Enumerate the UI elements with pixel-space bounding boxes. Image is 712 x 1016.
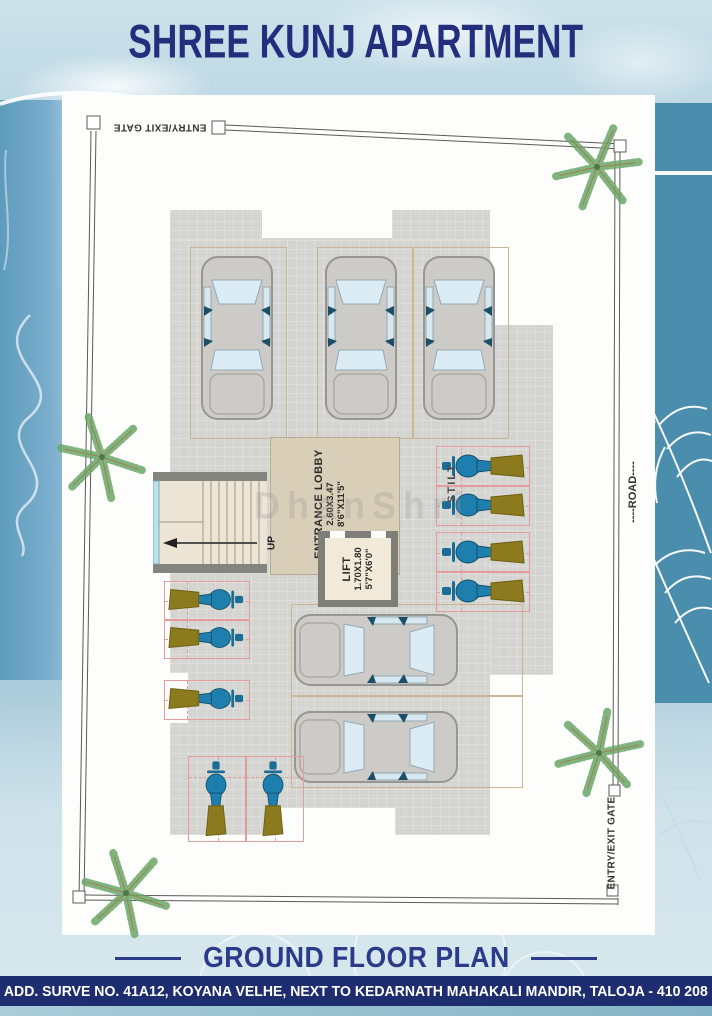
floor-plan-page: SHREE KUNJ APARTMENT — [0, 0, 712, 1016]
stilt-slab-tab-right — [392, 210, 490, 240]
scooter-b1 — [203, 761, 230, 837]
tree-symbol-top-right — [542, 112, 652, 222]
address-bar: ADD. SURVE NO. 41A12, KOYANA VELHE, NEXT… — [0, 976, 712, 1007]
scooter-l2 — [168, 624, 244, 651]
road-label: ----ROAD---- — [627, 461, 639, 523]
tree-symbol-bottom-left — [71, 838, 181, 948]
car-bottom-1 — [292, 611, 460, 689]
entry-exit-gate-right-label: ENTRY/EXIT GATE — [607, 797, 618, 890]
heading-rule-right — [531, 957, 597, 960]
up-label: UP — [267, 536, 278, 550]
plan-heading: GROUND FLOOR PLAN — [203, 942, 510, 975]
entry-exit-gate-top-label: ENTRY/EXIT GATE — [114, 122, 207, 133]
lift-label: LIFT 1.70X1.80 5'7"X6'0" — [341, 547, 375, 590]
car-top-3 — [420, 254, 498, 422]
plan-sheet: ENTRANCE LOBBY 2.60X3.47 8'6"X11'5" LIFT… — [62, 95, 655, 935]
lift-door-gap-2 — [371, 531, 386, 538]
scooter-r4 — [441, 577, 525, 605]
car-bottom-2 — [292, 708, 460, 786]
plan-heading-row: GROUND FLOOR PLAN — [0, 942, 712, 974]
scooter-b2 — [260, 761, 287, 837]
page-title: SHREE KUNJ APARTMENT — [0, 18, 712, 66]
lift-dim-imperial: 5'7"X6'0" — [364, 547, 375, 590]
heading-rule-left — [115, 957, 181, 960]
scooter-r3 — [441, 538, 525, 566]
scooter-l1 — [168, 586, 244, 613]
lift-door-gap-1 — [330, 531, 345, 538]
tree-symbol-bottom-right — [544, 698, 654, 808]
lift-dim-metric: 1.70X1.80 — [353, 547, 364, 590]
stilt-slab-tab-left — [170, 210, 262, 240]
watermark: DhanShri — [192, 484, 532, 528]
tree-symbol-left — [47, 402, 157, 512]
lift-title: LIFT — [341, 547, 354, 590]
bottom-blue-strip — [0, 1006, 712, 1016]
address-text: ADD. SURVE NO. 41A12, KOYANA VELHE, NEXT… — [4, 984, 708, 1000]
page-title-text: SHREE KUNJ APARTMENT — [129, 15, 584, 69]
car-top-2 — [322, 254, 400, 422]
scooter-l3 — [168, 685, 244, 712]
car-top-1 — [198, 254, 276, 422]
